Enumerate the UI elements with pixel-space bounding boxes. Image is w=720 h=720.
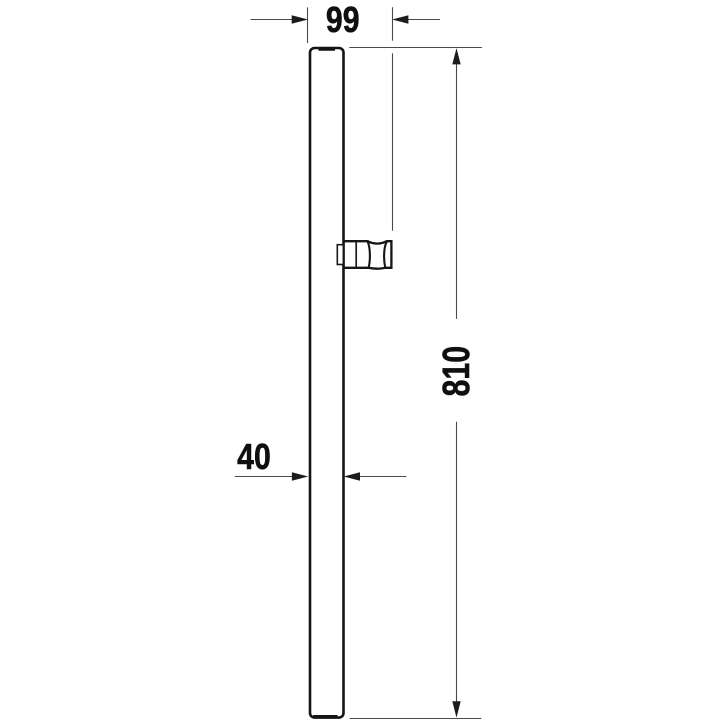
svg-text:99: 99 <box>326 0 360 40</box>
svg-text:40: 40 <box>237 437 271 477</box>
svg-text:810: 810 <box>436 346 478 397</box>
